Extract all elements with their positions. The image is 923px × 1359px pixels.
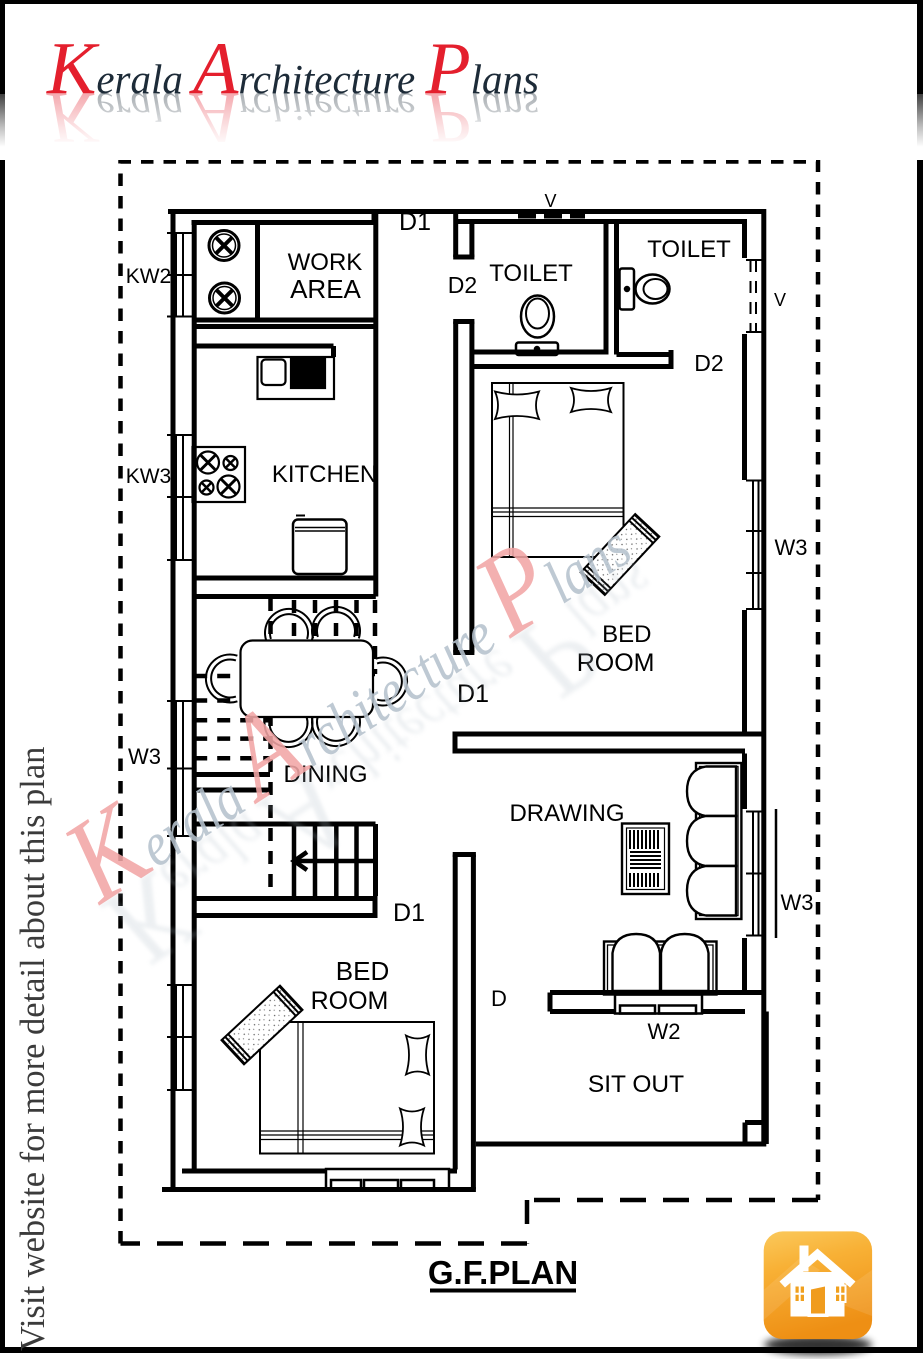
svg-text:D: D — [491, 986, 507, 1011]
svg-text:TOILET: TOILET — [489, 260, 573, 287]
svg-text:W2: W2 — [648, 1019, 681, 1044]
svg-text:DRAWING: DRAWING — [509, 800, 624, 827]
svg-text:V: V — [544, 191, 556, 211]
svg-text:KW2: KW2 — [126, 265, 172, 288]
svg-text:TOILET: TOILET — [647, 236, 731, 263]
svg-text:Visit website for more detail: Visit website for more detail about this… — [14, 747, 52, 1351]
svg-text:G.F.PLAN: G.F.PLAN — [428, 1254, 578, 1291]
svg-text:SIT OUT: SIT OUT — [588, 1071, 684, 1098]
svg-text:W3: W3 — [775, 535, 808, 560]
svg-text:BED: BED — [336, 956, 389, 986]
svg-text:KITCHEN: KITCHEN — [272, 461, 377, 488]
svg-text:WORK: WORK — [288, 249, 363, 276]
svg-text:AREA: AREA — [290, 274, 361, 304]
svg-text:W3: W3 — [781, 890, 814, 915]
svg-text:W3: W3 — [128, 744, 161, 769]
svg-text:D2: D2 — [694, 350, 723, 376]
svg-text:ROOM: ROOM — [311, 987, 389, 1015]
svg-text:V: V — [774, 290, 786, 310]
svg-text:D2: D2 — [448, 272, 477, 298]
svg-text:D1: D1 — [393, 899, 425, 927]
svg-text:D1: D1 — [399, 208, 431, 236]
svg-text:KW3: KW3 — [126, 465, 172, 488]
